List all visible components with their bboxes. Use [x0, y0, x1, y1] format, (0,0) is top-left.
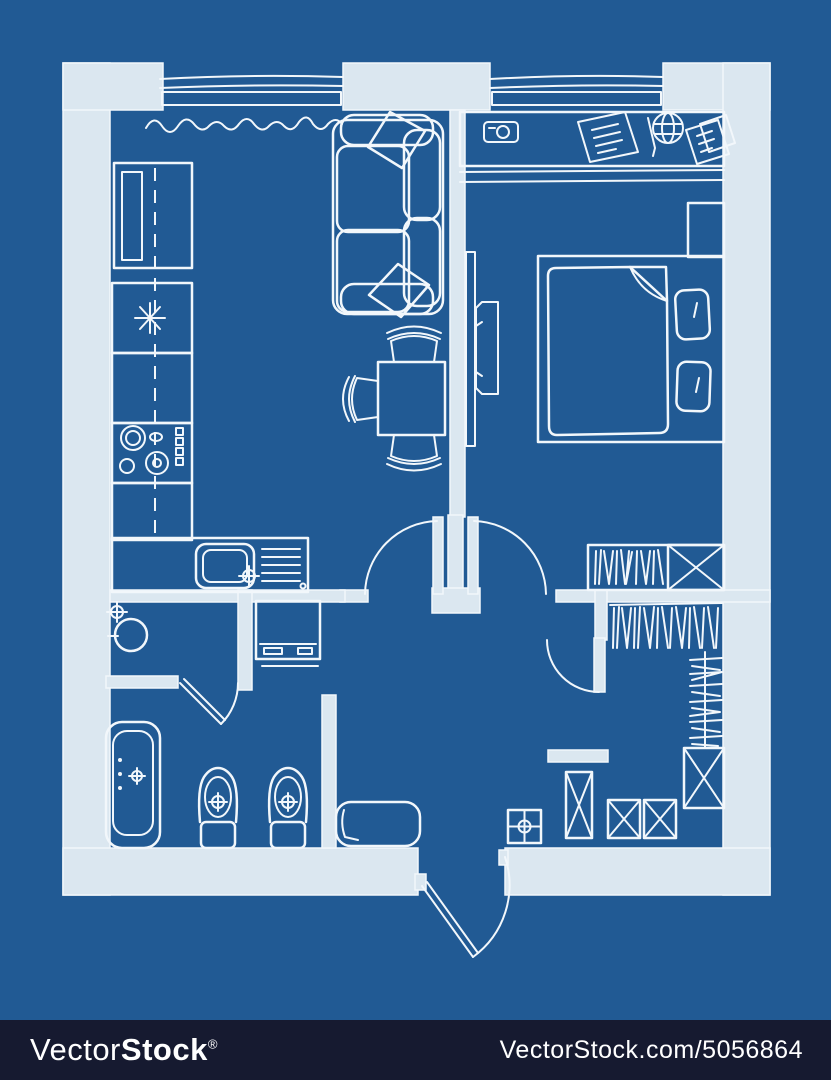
- watermark-bar: VectorStock® VectorStock.com/5056864: [0, 1020, 831, 1080]
- curtain: [146, 117, 342, 132]
- chair-top: [387, 327, 441, 363]
- double-bed: [538, 256, 724, 442]
- closet-door: [547, 638, 605, 692]
- wall-tv: [466, 252, 498, 446]
- nightstand: [688, 203, 724, 257]
- shelf-box-small-2: [644, 800, 676, 838]
- bench: [336, 802, 420, 846]
- washing-machine: [256, 601, 320, 666]
- wardrobe: [588, 545, 724, 590]
- toilet: [199, 768, 237, 848]
- wardrobe-shelf-box: [668, 545, 724, 590]
- sofa-pillow-bottom: [369, 264, 429, 317]
- shelf-box-small-1: [608, 800, 640, 838]
- bed-pillow-1: [675, 289, 711, 340]
- bed-pillow-2: [676, 361, 711, 411]
- bedroom-door: [468, 517, 546, 594]
- vectorstock-logo: VectorStock®: [30, 1032, 218, 1068]
- registered-mark: ®: [208, 1037, 218, 1052]
- kitchen-tall-cabinet: [114, 163, 192, 268]
- bathtub: [106, 722, 160, 848]
- kitchen-sink: [112, 538, 308, 592]
- dining-table: [378, 362, 445, 435]
- washbasin: [107, 602, 147, 651]
- entrance-door: [415, 850, 510, 957]
- chair-left: [343, 376, 378, 422]
- cooktop: [112, 423, 192, 483]
- closet-shelf-box-large: [684, 748, 724, 808]
- closet-rail-side: [690, 652, 722, 748]
- globe: [653, 113, 683, 143]
- window-2: [490, 76, 663, 105]
- logo-text-regular: Vector: [30, 1032, 121, 1067]
- side-table: [508, 810, 541, 843]
- fridge: [112, 283, 192, 353]
- interior-walls: [106, 110, 770, 848]
- closet-rail-top: [610, 603, 722, 648]
- stock-illustration: VectorStock® VectorStock.com/5056864: [0, 0, 831, 1080]
- shelf-box-tall: [566, 772, 592, 838]
- wardrobe-hangers: [595, 550, 663, 584]
- sofa: [333, 112, 443, 317]
- floor-plan-illustration: [0, 0, 831, 1020]
- paper: [578, 112, 638, 162]
- watermark-url: VectorStock.com/5056864: [500, 1036, 803, 1065]
- living-room-door: [365, 517, 443, 594]
- chair-bottom: [387, 435, 441, 471]
- window-1: [160, 76, 343, 105]
- logo-text-bold: Stock: [121, 1032, 208, 1067]
- bathroom-door: [180, 679, 238, 724]
- camera: [484, 122, 518, 142]
- outer-walls: [63, 63, 770, 895]
- bidet: [269, 768, 307, 848]
